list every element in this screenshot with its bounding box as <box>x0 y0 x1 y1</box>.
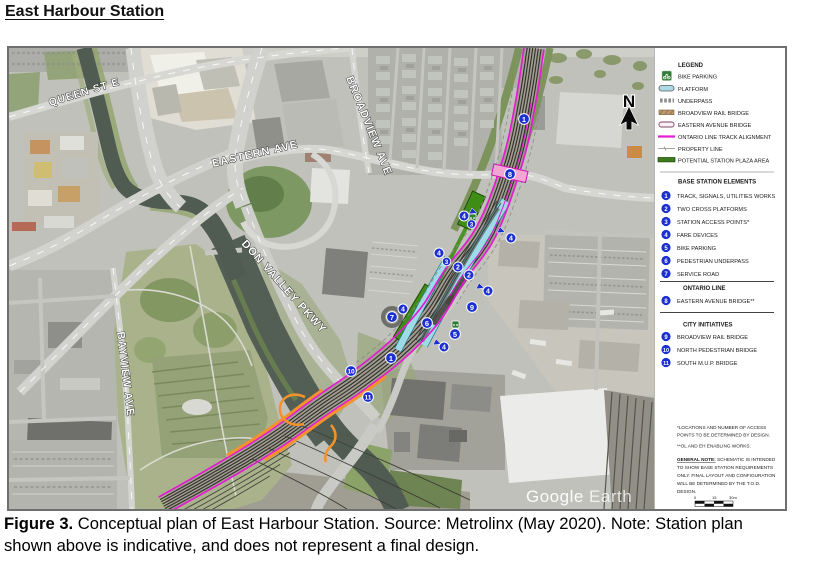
svg-text:SERVICE ROAD: SERVICE ROAD <box>677 272 719 278</box>
svg-text:BROADVIEW RAIL BRIDGE: BROADVIEW RAIL BRIDGE <box>677 335 748 341</box>
svg-text:TWO CROSS PLATFORMS: TWO CROSS PLATFORMS <box>677 207 747 213</box>
svg-text:4: 4 <box>437 251 441 258</box>
svg-text:4: 4 <box>401 307 405 314</box>
svg-text:POINTS TO BE DETERMINED BY DES: POINTS TO BE DETERMINED BY DESIGN. <box>677 433 770 438</box>
svg-text:UNDERPASS: UNDERPASS <box>678 99 713 105</box>
svg-text:3: 3 <box>445 259 449 266</box>
svg-text:30m: 30m <box>729 495 737 500</box>
svg-text:WILL BE DETERMINED BY THE T.O.: WILL BE DETERMINED BY THE T.O.D. <box>677 481 760 486</box>
svg-text:7: 7 <box>390 313 394 322</box>
svg-text:FARE DEVICES: FARE DEVICES <box>677 233 718 239</box>
svg-text:3: 3 <box>470 221 474 228</box>
svg-text:ONTARIO LINE: ONTARIO LINE <box>683 286 726 292</box>
svg-text:Google Earth: Google Earth <box>526 487 632 506</box>
svg-text:**OL AND EH ENABLING WORKS.: **OL AND EH ENABLING WORKS. <box>677 444 751 449</box>
svg-text:5: 5 <box>453 330 457 339</box>
svg-text:BIKE PARKING: BIKE PARKING <box>678 75 717 81</box>
svg-text:PLATFORM: PLATFORM <box>678 87 708 93</box>
svg-text:10: 10 <box>347 369 355 376</box>
svg-text:PROPERTY LINE: PROPERTY LINE <box>678 147 723 153</box>
svg-text:2: 2 <box>456 265 460 272</box>
svg-text:SOUTH M.U.P. BRIDGE: SOUTH M.U.P. BRIDGE <box>677 361 738 367</box>
svg-text:TO SHOW BASE STATION REQUIREME: TO SHOW BASE STATION REQUIREMENTS <box>677 465 773 470</box>
svg-text:4: 4 <box>509 236 513 243</box>
svg-text:10: 10 <box>663 348 669 354</box>
svg-text:8: 8 <box>508 170 512 179</box>
svg-text:4: 4 <box>442 345 446 352</box>
svg-text:TRACK, SIGNALS, UTILITIES WORK: TRACK, SIGNALS, UTILITIES WORKS <box>677 194 775 200</box>
svg-text:LEGEND: LEGEND <box>678 63 704 69</box>
svg-text:PEDESTRIAN UNDERPASS: PEDESTRIAN UNDERPASS <box>677 259 749 265</box>
svg-text:ONLY. FINAL LAYOUT AND CONFIGU: ONLY. FINAL LAYOUT AND CONFIGURATION <box>677 473 775 478</box>
svg-text:STATION ACCESS POINTS*: STATION ACCESS POINTS* <box>677 220 750 226</box>
svg-text:2: 2 <box>467 273 471 280</box>
svg-text:POTENTIAL STATION PLAZA AREA: POTENTIAL STATION PLAZA AREA <box>678 159 770 165</box>
svg-text:9: 9 <box>470 303 474 312</box>
svg-text:DESIGN.: DESIGN. <box>677 489 696 494</box>
svg-text:BIKE PARKING: BIKE PARKING <box>677 246 716 252</box>
svg-text:BROADVIEW RAIL BRIDGE: BROADVIEW RAIL BRIDGE <box>678 111 749 117</box>
svg-text:1: 1 <box>389 354 393 363</box>
svg-text:6: 6 <box>425 319 429 328</box>
svg-text:4: 4 <box>462 214 466 221</box>
svg-text:4: 4 <box>486 289 490 296</box>
svg-text:EASTERN AVENUE BRIDGE**: EASTERN AVENUE BRIDGE** <box>677 299 755 305</box>
svg-text:NORTH PEDESTRIAN BRIDGE: NORTH PEDESTRIAN BRIDGE <box>677 348 757 354</box>
svg-text:CITY INITIATIVES: CITY INITIATIVES <box>683 323 732 329</box>
svg-text:ONTARIO LINE TRACK ALIGNMENT: ONTARIO LINE TRACK ALIGNMENT <box>678 135 772 141</box>
svg-text:1: 1 <box>522 115 526 124</box>
svg-text:11: 11 <box>365 395 372 402</box>
svg-text:*LOCATIONS AND NUMBER OF ACCES: *LOCATIONS AND NUMBER OF ACCESS <box>677 425 766 430</box>
svg-text:GENERAL NOTE: SCHEMATIC IS INT: GENERAL NOTE: SCHEMATIC IS INTENDED <box>677 457 776 462</box>
svg-text:11: 11 <box>663 361 669 367</box>
svg-text:BASE STATION ELEMENTS: BASE STATION ELEMENTS <box>678 180 756 186</box>
svg-text:EASTERN AVENUE BRIDGE: EASTERN AVENUE BRIDGE <box>678 123 752 129</box>
svg-text:15: 15 <box>712 495 717 500</box>
